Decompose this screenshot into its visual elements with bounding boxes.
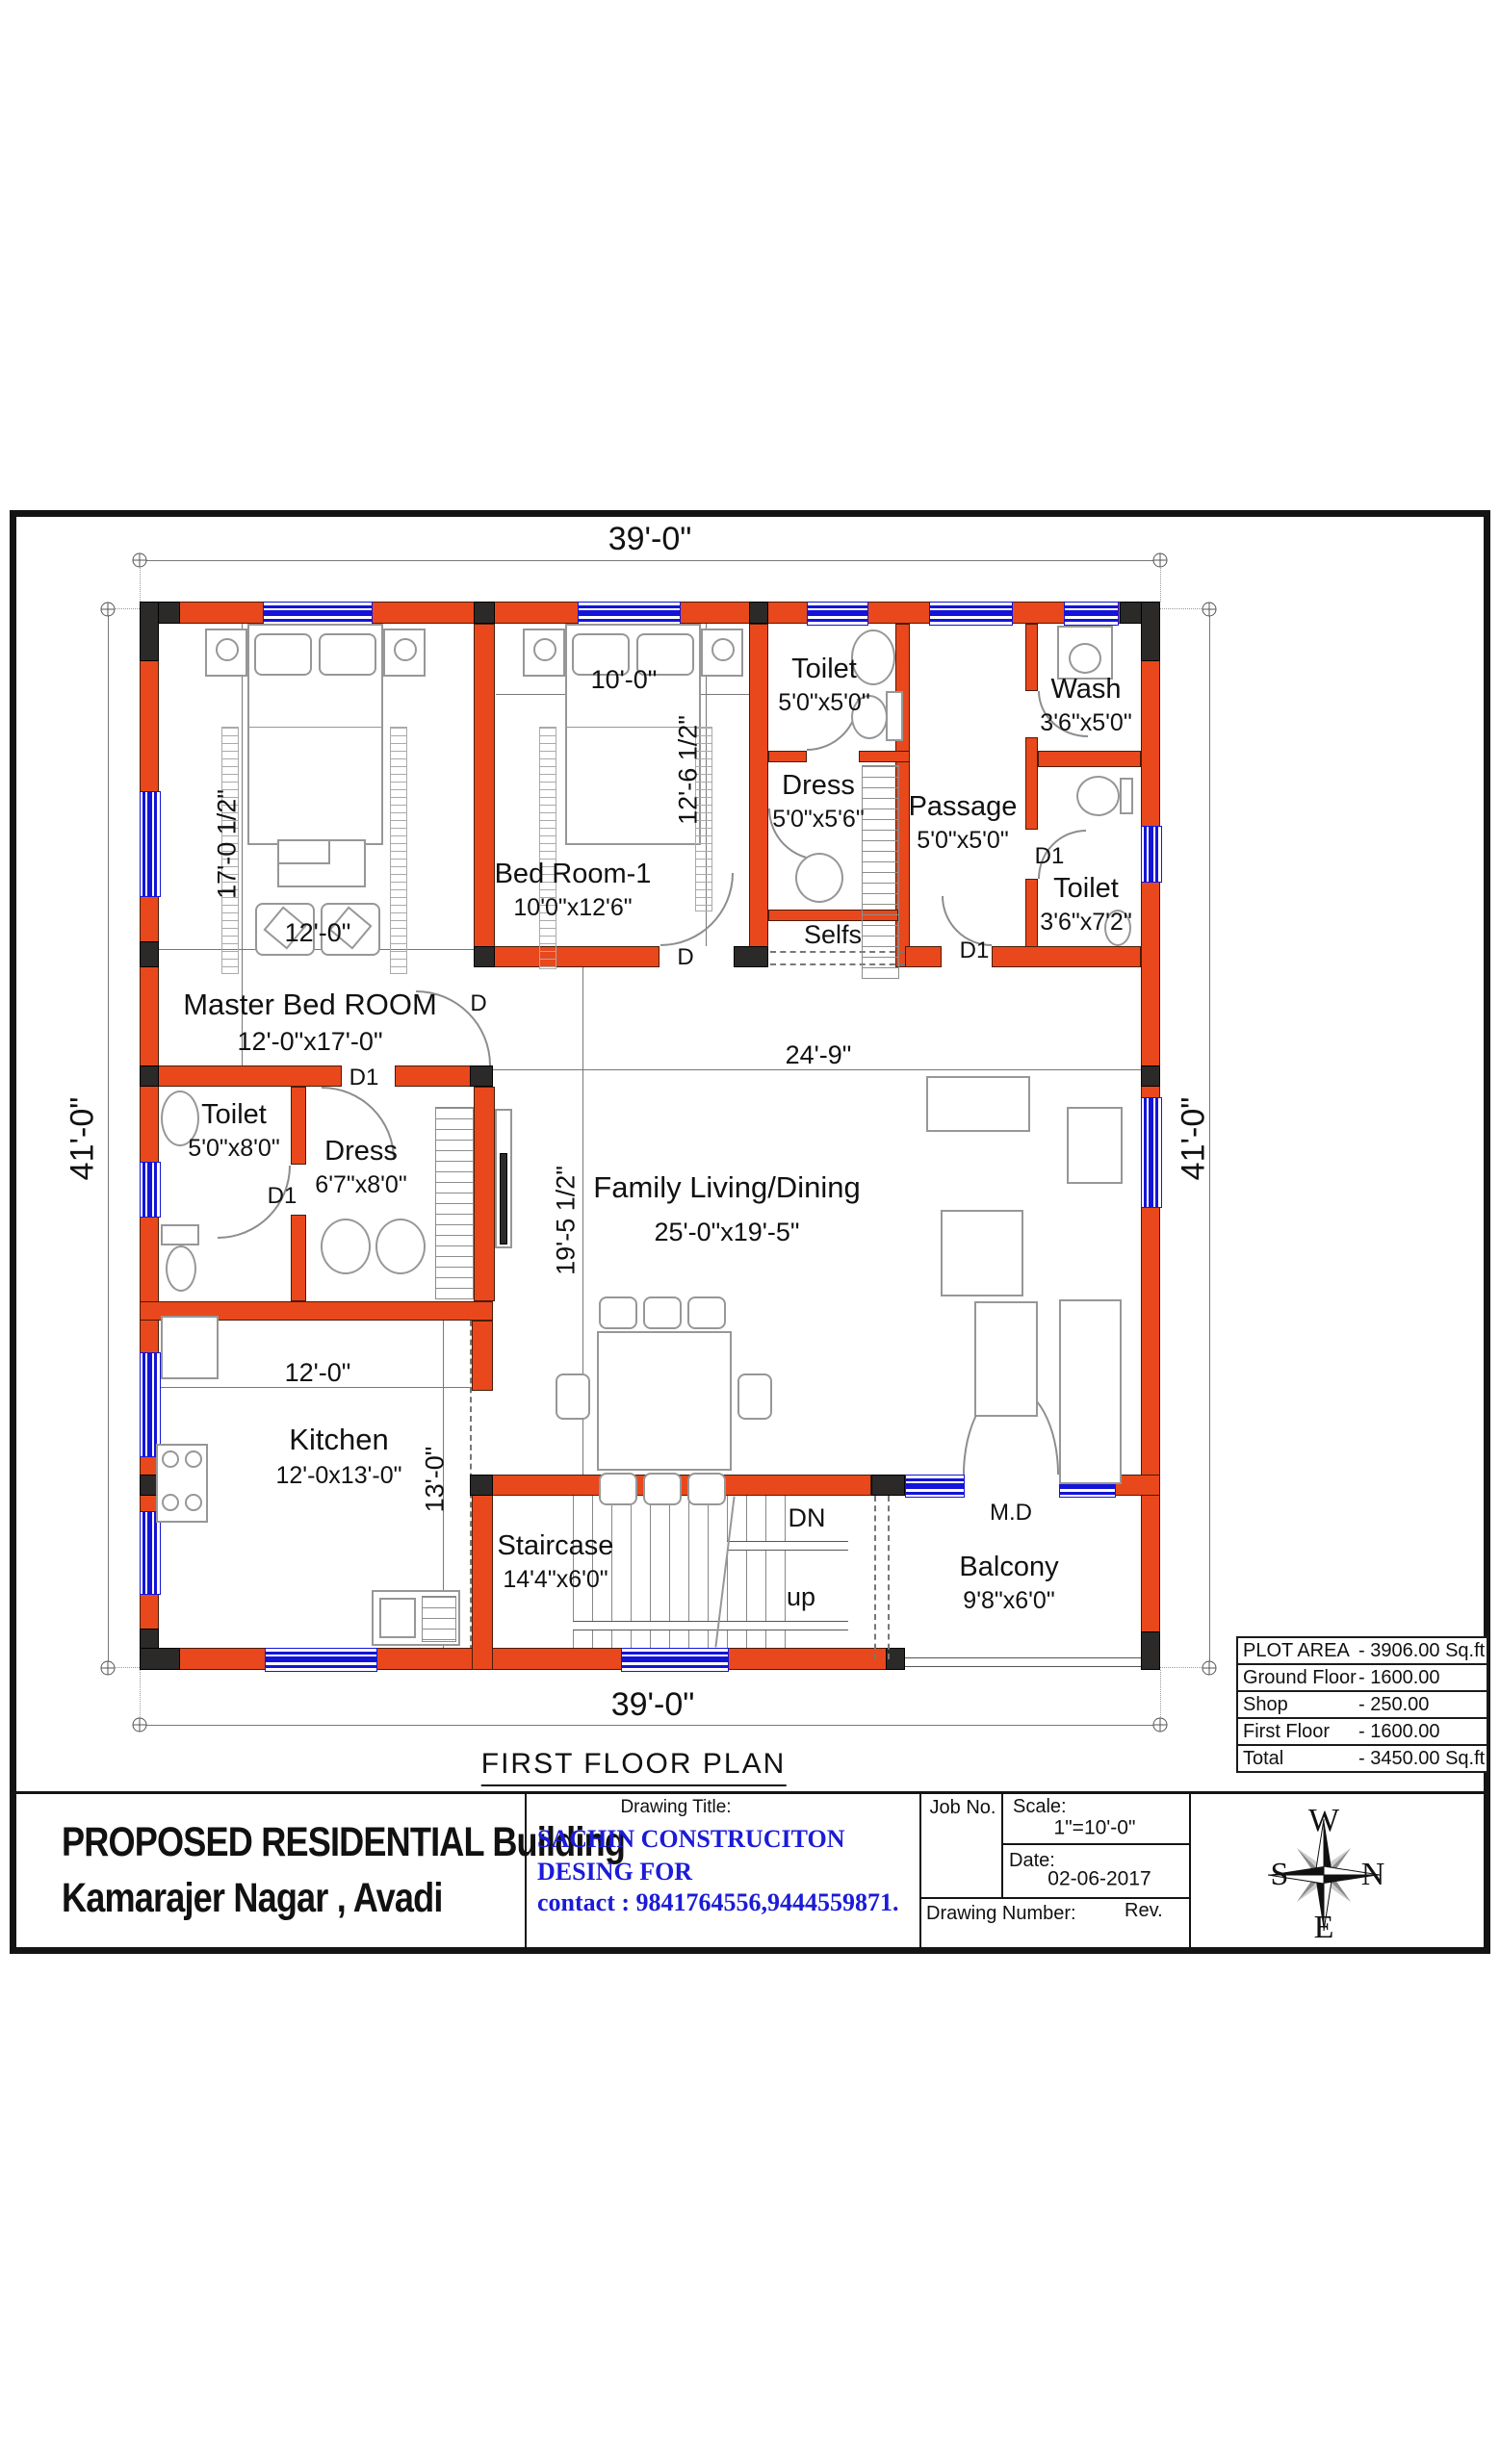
- window-kitchen-left: [140, 1352, 161, 1457]
- firm-contact-line: contact : 9841764556,9444559871.: [537, 1888, 899, 1917]
- room-name: Toilet: [778, 653, 869, 685]
- wall-passage-toilet2: [1025, 737, 1038, 830]
- lamp-icon: [394, 638, 417, 661]
- dining-chair-icon: [643, 1473, 682, 1505]
- toilet-bowl-icon: [1076, 776, 1120, 816]
- room-name: Master Bed ROOM: [183, 988, 437, 1023]
- extension-line: [1160, 564, 1161, 602]
- stair-label-dn: DN: [789, 1503, 826, 1534]
- fridge-icon: [161, 1316, 219, 1379]
- room-size: 5'0"x8'0": [188, 1135, 279, 1164]
- firm-name-line2: DESING FOR: [537, 1858, 692, 1886]
- dim-master-width: 12'-0": [285, 918, 351, 949]
- wall-corner-block: [470, 1065, 493, 1087]
- room-label-master: Master Bed ROOM12'-0"x17'-0": [183, 988, 437, 1057]
- dim-kitchen-height: 13'-0": [421, 1447, 451, 1513]
- dim-marker: [133, 553, 147, 568]
- basin-icon: [795, 853, 843, 903]
- dresser-step: [277, 839, 330, 864]
- table-row: Shop- 250.00: [1238, 1692, 1487, 1719]
- window-master-top: [263, 602, 373, 626]
- pillow-icon: [319, 633, 376, 676]
- room-size: 9'8"x6'0": [959, 1587, 1058, 1616]
- date-value: 02-06-2017: [1047, 1868, 1151, 1892]
- room-label-bedroom1: Bed Room-110'0"x12'6": [495, 858, 652, 923]
- dim-marker: [1153, 553, 1168, 568]
- door-label-d1-passage: D1: [960, 937, 990, 964]
- compass-east-label: E: [1314, 1909, 1334, 1947]
- row-value: - 3906.00 Sq.ft: [1358, 1640, 1485, 1662]
- wall-corner-block: [140, 1648, 180, 1670]
- balcony-stair-divider: [874, 1496, 876, 1659]
- room-label-living: Family Living/Dining25'-0"x19'-5": [593, 1170, 860, 1247]
- dim-kitchen-width: 12'-0": [285, 1358, 351, 1389]
- room-name: Toilet: [188, 1098, 279, 1131]
- dim-bottom-width: 39'-0": [611, 1685, 695, 1724]
- blanket-line: [248, 727, 382, 728]
- window-kitchen-bottom: [265, 1648, 377, 1672]
- pillow-icon: [254, 633, 312, 676]
- dim-line-bottom: [140, 1725, 1160, 1726]
- wall-corner-block: [749, 602, 768, 624]
- balcony-stair-divider: [888, 1496, 890, 1659]
- staircase-rail-dn: [727, 1541, 848, 1551]
- dim-marker: [101, 603, 116, 617]
- dining-chair-icon: [599, 1473, 637, 1505]
- burner-icon: [162, 1494, 179, 1511]
- door-label-d-bedroom1: D: [677, 944, 693, 971]
- wall-kitchen-stair: [472, 1475, 493, 1670]
- wall-corner-block: [140, 941, 159, 967]
- wardrobe-strip-icon: [539, 727, 556, 969]
- sofa-long-icon: [1059, 1299, 1122, 1484]
- wall-passage-bottom: [905, 946, 942, 967]
- dining-chair-icon: [599, 1296, 637, 1329]
- room-size: 12'-0"x17'-0": [183, 1026, 437, 1057]
- wall-toilet3-dress2: [291, 1215, 306, 1301]
- room-name: Kitchen: [276, 1423, 402, 1458]
- burner-icon: [162, 1450, 179, 1468]
- wall-toilet3-dress2: [291, 1087, 306, 1165]
- wall-master-bed1: [474, 624, 495, 967]
- door-label-md: M.D: [990, 1500, 1032, 1527]
- wall-corner-block: [734, 946, 768, 967]
- scale-label: Scale:: [1013, 1796, 1067, 1818]
- row-label: Total: [1238, 1748, 1358, 1770]
- row-label: Ground Floor: [1238, 1667, 1358, 1689]
- dining-table-icon: [597, 1331, 732, 1471]
- scale-value: 1"=10'-0": [1054, 1817, 1136, 1841]
- toilet-tank-icon: [886, 691, 903, 741]
- room-name: Dress: [315, 1135, 406, 1168]
- dim-master-height: 17'-0 1/2": [213, 789, 243, 899]
- room-size: 5'0"x5'6": [772, 806, 864, 834]
- wall-dress2-living: [474, 1087, 495, 1301]
- room-name: Family Living/Dining: [593, 1170, 860, 1206]
- table-row: Ground Floor- 1600.00: [1238, 1665, 1487, 1692]
- wall-corner-block: [470, 1475, 493, 1496]
- compass-west-label: W: [1308, 1802, 1339, 1840]
- window-master-left: [140, 791, 161, 897]
- wardrobe-ladder-icon: [435, 1107, 474, 1299]
- room-name: Toilet: [1040, 872, 1131, 905]
- extension-line: [140, 1670, 141, 1725]
- room-label-balcony: Balcony9'8"x6'0": [959, 1551, 1058, 1616]
- dim-marker: [1203, 1661, 1217, 1676]
- coffee-table-icon: [941, 1210, 1023, 1296]
- room-label-passage: Passage5'0"x5'0": [909, 790, 1018, 856]
- wall-master-bottom: [140, 1065, 342, 1087]
- room-size: 14'4"x6'0": [498, 1566, 614, 1595]
- drawing-title-label: Drawing Title:: [620, 1797, 731, 1818]
- row-value: - 1600.00: [1358, 1721, 1440, 1743]
- compass-south-label: S: [1271, 1856, 1289, 1894]
- title-block-top-line: [10, 1791, 1490, 1794]
- plot-area-table: PLOT AREA- 3906.00 Sq.ft Ground Floor- 1…: [1236, 1636, 1488, 1773]
- wall-corner-block: [871, 1475, 905, 1496]
- room-label-wash: Wash3'6"x5'0": [1040, 673, 1131, 738]
- door-label-d1-toilet2: D1: [1035, 843, 1065, 870]
- wardrobe-strip-icon: [390, 727, 407, 974]
- wall-corner-block: [1141, 1631, 1160, 1670]
- title-block-divider: [1001, 1793, 1003, 1899]
- wall-outer-bottom: [140, 1648, 891, 1670]
- table-row: Total- 3450.00 Sq.ft: [1238, 1746, 1487, 1771]
- row-value: - 3450.00 Sq.ft: [1358, 1748, 1485, 1770]
- title-block-divider: [525, 1793, 527, 1947]
- window-balcony-left: [905, 1475, 965, 1498]
- room-size: 3'6"x5'0": [1040, 709, 1131, 738]
- lamp-icon: [711, 638, 735, 661]
- console-shelf: [500, 1153, 507, 1245]
- dim-line-master-width: [140, 949, 491, 950]
- wall-toilet-dress: [768, 751, 807, 762]
- sink-drainboard: [422, 1596, 456, 1642]
- window-stair-bottom: [621, 1648, 729, 1672]
- room-size: 10'0"x12'6": [495, 894, 652, 923]
- row-label: First Floor: [1238, 1721, 1358, 1743]
- basin-icon: [375, 1219, 426, 1274]
- drawing-number-label: Drawing Number:: [926, 1903, 1076, 1925]
- stair-label-up: up: [787, 1582, 815, 1613]
- door-label-d1-master: D1: [349, 1065, 379, 1091]
- room-name: Wash: [1040, 673, 1131, 706]
- room-label-kitchen: Kitchen12'-0x13'-0": [276, 1423, 402, 1490]
- dim-left-height: 41'-0": [65, 1097, 102, 1181]
- dim-marker: [133, 1718, 147, 1732]
- balcony-railing: [891, 1657, 1141, 1667]
- lamp-icon: [216, 638, 239, 661]
- wall-bed1-toilet: [749, 624, 768, 967]
- rev-label: Rev.: [1125, 1900, 1163, 1922]
- wall-bed1-bottom: [474, 946, 659, 967]
- dim-line-top: [140, 560, 1160, 561]
- dining-chair-icon: [687, 1296, 726, 1329]
- window-passage-top: [929, 602, 1013, 626]
- washing-machine-drum: [1069, 643, 1101, 674]
- room-label-dress-top: Dress5'0"x5'6": [772, 769, 864, 834]
- dining-chair-icon: [737, 1373, 772, 1420]
- plan-title: FIRST FLOOR PLAN: [481, 1748, 787, 1786]
- room-size: 5'0"x5'0": [909, 827, 1018, 856]
- row-value: - 250.00: [1358, 1694, 1429, 1716]
- table-row: First Floor- 1600.00: [1238, 1719, 1487, 1746]
- wall-wash-toilet2: [1038, 751, 1141, 767]
- title-block-divider: [1001, 1843, 1191, 1845]
- dim-marker: [101, 1661, 116, 1676]
- wall-corner-block: [1141, 602, 1160, 661]
- dim-living-height: 19'-5 1/2": [552, 1166, 582, 1275]
- toilet-bowl-icon: [166, 1245, 196, 1292]
- compass-north-label: N: [1361, 1856, 1385, 1894]
- sofa-chair-icon: [1067, 1107, 1123, 1184]
- dim-living-width: 24'-9": [786, 1040, 852, 1071]
- dim-marker: [1153, 1718, 1168, 1732]
- room-label-staircase: Staircase14'4"x6'0": [498, 1529, 614, 1595]
- door-label-d1-toilet3: D1: [268, 1183, 297, 1210]
- sofa-icon: [926, 1076, 1030, 1132]
- window-toilet3-left: [140, 1162, 161, 1218]
- row-label: Shop: [1238, 1694, 1358, 1716]
- wall-corner-block: [1141, 1065, 1160, 1087]
- window-kitchen-left2: [140, 1511, 161, 1595]
- dining-chair-icon: [643, 1296, 682, 1329]
- firm-name-line1: SACHIN CONSTRUCITON: [537, 1825, 845, 1854]
- room-size: 3'6"x7'2": [1040, 909, 1131, 937]
- row-value: - 1600.00: [1358, 1667, 1440, 1689]
- project-title-line2: Kamarajer Nagar , Avadi: [62, 1875, 443, 1922]
- dim-top-width: 39'-0": [608, 520, 692, 558]
- sink-bowl: [379, 1598, 416, 1638]
- sofa-seat-icon: [974, 1301, 1038, 1417]
- title-block-divider: [919, 1897, 1191, 1899]
- room-name: Balcony: [959, 1551, 1058, 1583]
- room-label-toilet-left: Toilet5'0"x8'0": [188, 1098, 279, 1164]
- shelf-ladder-icon: [862, 765, 899, 979]
- room-size: 25'-0"x19'-5": [593, 1217, 860, 1247]
- basin-icon: [321, 1219, 371, 1274]
- room-name: Dress: [772, 769, 864, 802]
- room-name: Staircase: [498, 1529, 614, 1562]
- extension-line: [140, 564, 141, 602]
- room-name: Passage: [909, 790, 1018, 823]
- dining-chair-icon: [556, 1373, 590, 1420]
- window-wash-top: [1064, 602, 1119, 626]
- burner-icon: [185, 1450, 202, 1468]
- extension-line: [1160, 1670, 1161, 1725]
- title-block-divider: [1189, 1793, 1191, 1947]
- door-label-d-master: D: [470, 990, 486, 1017]
- wall-passage-wash: [1025, 624, 1038, 691]
- wall-toilet2-bottom: [992, 946, 1141, 967]
- window-toilet2-right: [1141, 826, 1162, 883]
- room-name: Bed Room-1: [495, 858, 652, 890]
- lamp-icon: [533, 638, 556, 661]
- wall-corner-block: [474, 946, 495, 967]
- room-label-dress-left: Dress6'7"x8'0": [315, 1135, 406, 1200]
- label-selfs: Selfs: [804, 920, 862, 951]
- window-bed1-top: [578, 602, 681, 626]
- wall-toilet-dress: [859, 751, 910, 762]
- window-living-right: [1141, 1097, 1162, 1208]
- wall-corner-block: [474, 602, 495, 624]
- room-label-toilet-top: Toilet5'0"x5'0": [778, 653, 869, 718]
- job-no-label: Job No.: [930, 1797, 996, 1820]
- staircase-rail-up: [573, 1621, 848, 1630]
- title-block-divider: [919, 1793, 921, 1947]
- dim-line-left: [108, 609, 109, 1668]
- toilet-tank-icon: [161, 1224, 199, 1245]
- room-size: 6'7"x8'0": [315, 1171, 406, 1200]
- dining-chair-icon: [687, 1473, 726, 1505]
- wall-corner-block: [140, 602, 159, 661]
- room-label-toilet-right: Toilet3'6"x7'2": [1040, 872, 1131, 937]
- room-size: 12'-0x13'-0": [276, 1462, 402, 1491]
- wall-corner-block: [140, 1065, 159, 1087]
- row-label: PLOT AREA: [1238, 1640, 1358, 1662]
- toilet-tank-icon: [1120, 778, 1133, 814]
- wall-kitchen-living: [472, 1321, 493, 1391]
- burner-icon: [185, 1494, 202, 1511]
- dim-bed1-height: 12'-6 1/2": [674, 715, 704, 825]
- table-row: PLOT AREA- 3906.00 Sq.ft: [1238, 1638, 1487, 1665]
- dim-marker: [1203, 603, 1217, 617]
- dim-right-height: 41'-0": [1176, 1097, 1213, 1181]
- dim-bed1-width: 10'-0": [591, 665, 658, 696]
- window-toilet-top: [807, 602, 868, 626]
- room-size: 5'0"x5'0": [778, 689, 869, 718]
- floor-plan-page: { "colors": {"wall":"#e8481c","wall_corn…: [0, 0, 1500, 2464]
